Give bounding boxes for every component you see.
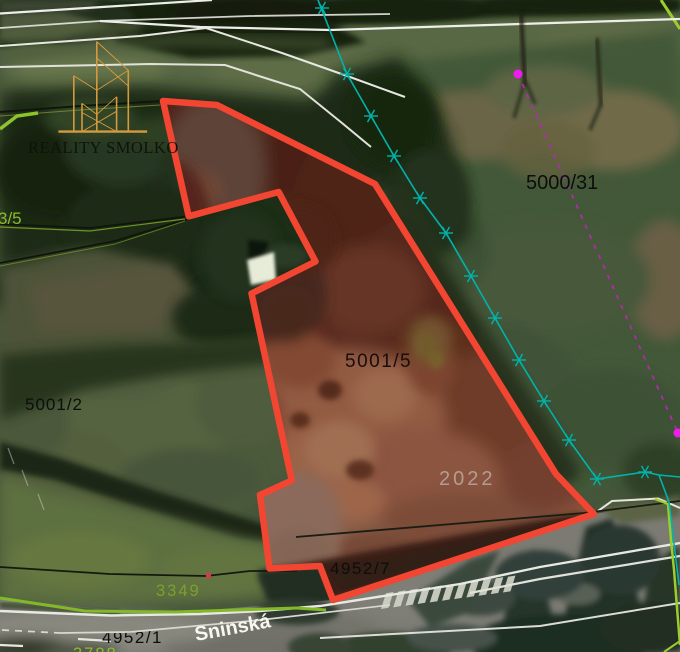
svg-text:2022: 2022 (439, 468, 496, 490)
svg-text:3788: 3788 (73, 645, 118, 652)
svg-text:5001/5: 5001/5 (345, 351, 412, 372)
svg-text:5000/31: 5000/31 (526, 172, 598, 194)
svg-text:3/5: 3/5 (0, 209, 22, 228)
svg-text:4952/7: 4952/7 (330, 559, 391, 578)
svg-text:3349: 3349 (156, 582, 201, 600)
svg-text:REALITY SMOLKO: REALITY SMOLKO (28, 138, 179, 157)
svg-text:5001/2: 5001/2 (25, 395, 83, 414)
